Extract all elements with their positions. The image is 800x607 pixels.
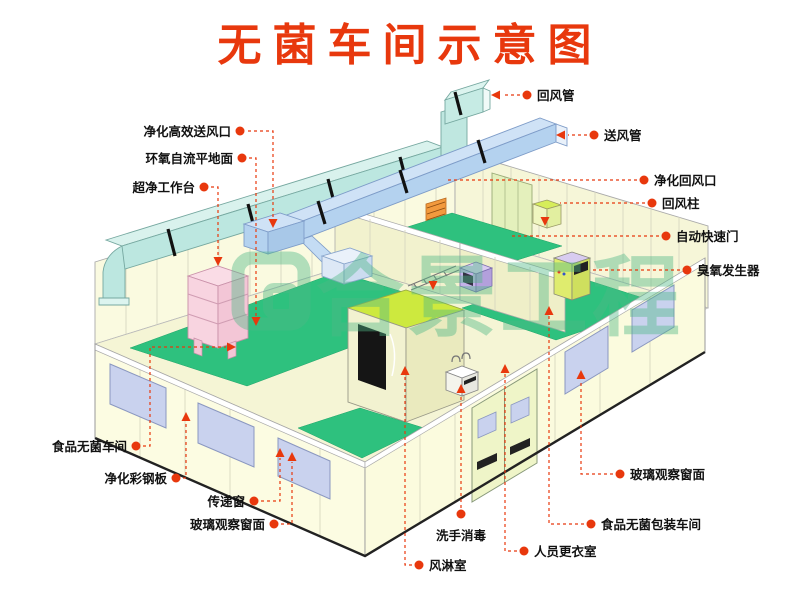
leader-dot-icon <box>238 154 247 163</box>
label-ozone-generator: 臭氧发生器 <box>697 263 760 278</box>
leader-dot-icon <box>616 470 625 479</box>
leader-dot-icon <box>587 520 596 529</box>
label-air-shower-room: 风淋室 <box>429 558 467 573</box>
label-return-air-column: 回风柱 <box>662 196 700 211</box>
leader-dot-icon <box>662 232 671 241</box>
watermark-text: 合景工程 <box>316 246 684 349</box>
leader-dot-icon <box>270 520 279 529</box>
label-hepa-supply-outlet: 净化高效送风口 <box>143 124 231 139</box>
leader-dot-icon <box>250 497 259 506</box>
label-automatic-fast-door: 自动快速门 <box>676 229 739 244</box>
return-duct-elbow-cap <box>99 298 129 305</box>
leader-dot-icon <box>520 547 529 556</box>
page-title: 无菌车间示意图 <box>218 20 603 71</box>
label-personnel-changing-room: 人员更衣室 <box>534 544 597 559</box>
bench-front <box>188 276 218 348</box>
label-purification-steel-panel: 净化彩钢板 <box>104 471 167 486</box>
label-glass-observation-window-right: 玻璃观察窗面 <box>630 467 706 482</box>
label-hand-wash-disinfection: 洗手消毒 <box>436 528 487 543</box>
leader-dot-icon <box>415 561 424 570</box>
label-transfer-window: 传递窗 <box>206 494 245 509</box>
label-epoxy-floor: 环氧自流平地面 <box>145 151 233 166</box>
return-air-column <box>533 200 561 228</box>
leader-dot-icon <box>200 183 209 192</box>
leader-dot-icon <box>132 442 141 451</box>
label-food-sterile-workshop: 食品无菌车间 <box>51 439 127 454</box>
leader-dot-icon <box>236 127 245 136</box>
label-clean-bench: 超净工作台 <box>131 180 195 195</box>
leader-dot-icon <box>457 510 466 519</box>
label-supply-air-duct: 送风管 <box>603 128 642 143</box>
arrow-left-icon <box>491 91 500 100</box>
leader-dot-icon <box>648 199 657 208</box>
leader-dot-icon <box>640 176 649 185</box>
leader-dot-icon <box>523 91 532 100</box>
label-glass-observation-window-left: 玻璃观察窗面 <box>190 517 266 532</box>
leader-dot-icon <box>590 131 599 140</box>
diagram-canvas: 合景工程 <box>0 0 800 607</box>
label-purification-return-outlet: 净化回风口 <box>654 173 717 188</box>
label-food-sterile-packaging-workshop: 食品无菌包装车间 <box>600 517 701 532</box>
leader-dot-icon <box>683 266 692 275</box>
column-side <box>547 205 561 228</box>
leader-dot-icon <box>172 474 181 483</box>
cleanroom-schematic: 合景工程 <box>0 0 800 607</box>
return-duct-elbow <box>103 246 125 298</box>
return-duct-end-cap <box>483 88 490 112</box>
label-return-air-duct: 回风管 <box>537 88 575 103</box>
